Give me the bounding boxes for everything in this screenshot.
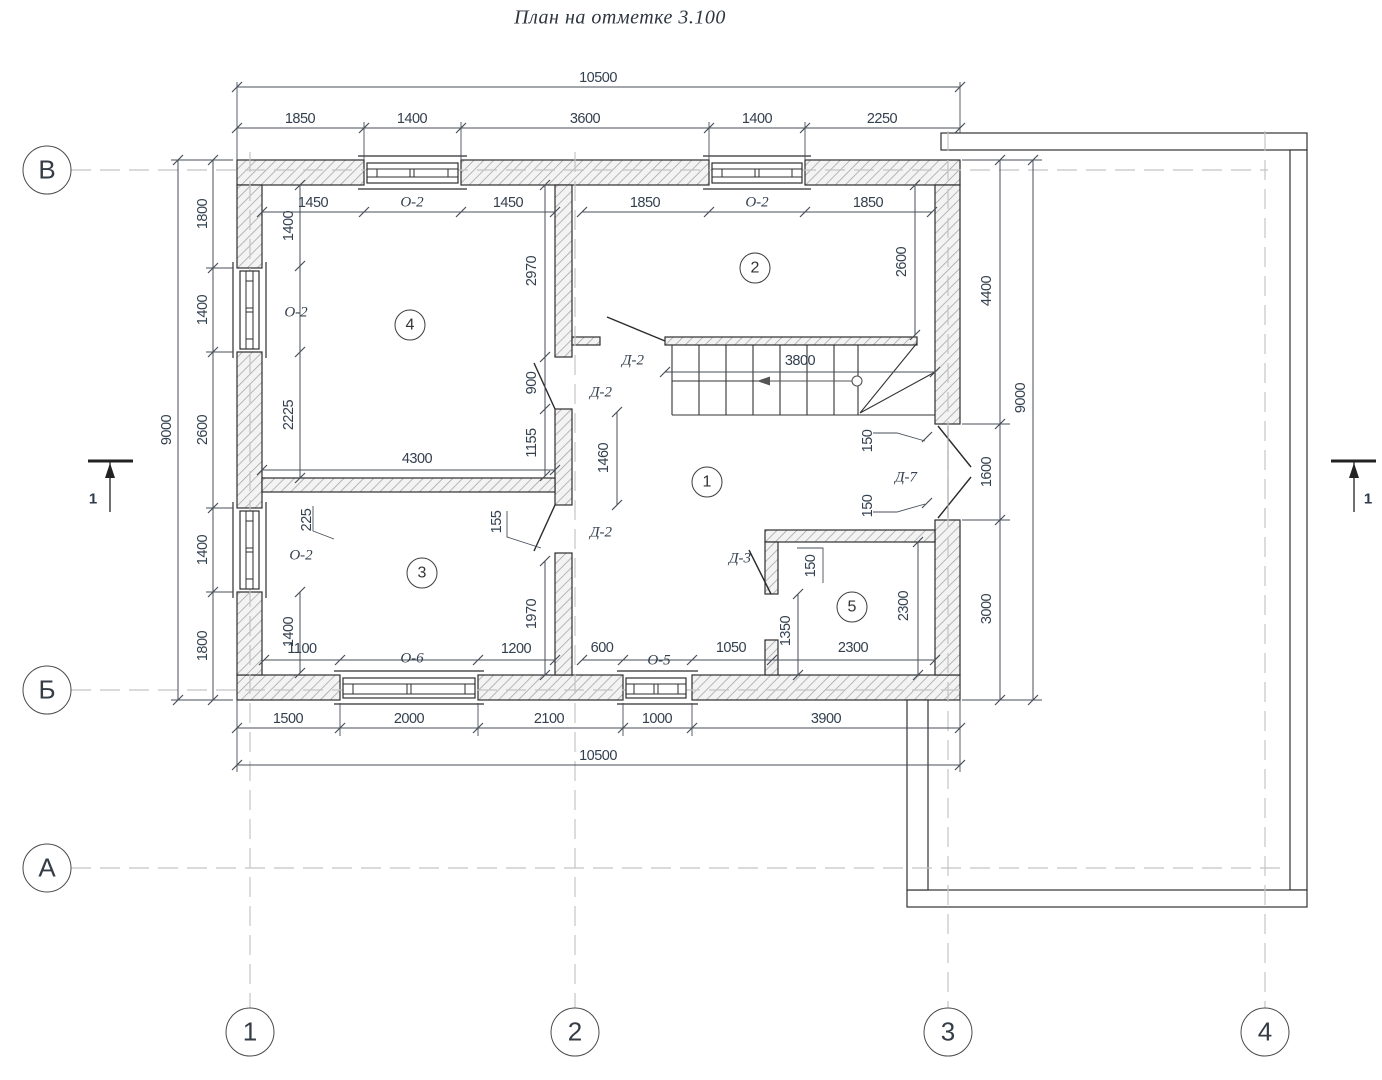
dimension-label: 150 xyxy=(860,495,876,518)
dimension-label: 4400 xyxy=(979,276,995,306)
dimension-label: 3800 xyxy=(785,353,815,369)
dimension-label: 1155 xyxy=(524,428,540,457)
dimension-label: 1200 xyxy=(501,641,531,657)
dimension-label: 225 xyxy=(299,509,315,532)
room-number-badge: 5 xyxy=(837,592,868,623)
dimension-label: 1800 xyxy=(195,631,211,661)
room-number-badge: 4 xyxy=(395,310,426,341)
dimension-label: 1000 xyxy=(642,711,672,727)
dimension-label: 10500 xyxy=(579,748,617,764)
dimension-label: 10500 xyxy=(579,70,617,86)
section-label-left: 1 xyxy=(89,491,97,508)
dimension-label: 2600 xyxy=(894,247,910,277)
dimension-label: 150 xyxy=(860,430,876,453)
dimension-label: 1450 xyxy=(298,195,328,211)
dimension-label: 2300 xyxy=(896,591,912,621)
dimension-label: 2600 xyxy=(195,415,211,445)
dimension-label: 1800 xyxy=(195,199,211,229)
axis-col-bubble: 4 xyxy=(1241,1008,1290,1057)
dimension-label: 2970 xyxy=(524,256,540,286)
opening-label: О-6 xyxy=(400,651,423,668)
dimension-label: 1400 xyxy=(195,295,211,325)
dimension-label: 1850 xyxy=(853,195,883,211)
opening-label: О-5 xyxy=(647,653,670,670)
opening-label: Д-2 xyxy=(590,385,612,402)
axis-col-bubble: 1 xyxy=(226,1008,275,1057)
dimension-label: 9000 xyxy=(159,415,175,445)
annotation-layer: План на отметке 3.100 1 1 10500185014003… xyxy=(0,0,1382,1080)
dimension-label: 2000 xyxy=(394,711,424,727)
opening-label: Д-3 xyxy=(729,551,751,568)
dimension-label: 600 xyxy=(591,640,614,656)
dimension-label: 1850 xyxy=(630,195,660,211)
opening-label: О-2 xyxy=(289,548,312,565)
dimension-label: 9000 xyxy=(1013,383,1029,413)
dimension-label: 1450 xyxy=(493,195,523,211)
room-number-badge: 2 xyxy=(740,253,771,284)
dimension-label: 1500 xyxy=(273,711,303,727)
dimension-label: 1600 xyxy=(979,457,995,487)
opening-label: Д-2 xyxy=(622,353,644,370)
dimension-label: 4300 xyxy=(402,451,432,467)
dimension-label: 3600 xyxy=(570,111,600,127)
opening-label: Д-2 xyxy=(590,525,612,542)
dimension-label: 3900 xyxy=(811,711,841,727)
dimension-label: 3000 xyxy=(979,594,995,624)
dimension-label: 155 xyxy=(489,511,505,534)
dimension-label: 1400 xyxy=(195,535,211,565)
dimension-label: 2250 xyxy=(867,111,897,127)
dimension-label: 2300 xyxy=(838,640,868,656)
dimension-label: 900 xyxy=(524,372,540,395)
axis-col-bubble: 2 xyxy=(551,1008,600,1057)
dimension-label: 1400 xyxy=(397,111,427,127)
axis-row-bubble: В xyxy=(23,146,72,195)
opening-label: О-2 xyxy=(284,305,307,322)
opening-label: О-2 xyxy=(745,195,768,212)
room-number-badge: 1 xyxy=(692,467,723,498)
dimension-label: 1400 xyxy=(742,111,772,127)
dimension-label: 1050 xyxy=(716,640,746,656)
axis-col-bubble: 3 xyxy=(924,1008,973,1057)
drawing-title: План на отметке 3.100 xyxy=(514,7,726,30)
section-label-right: 1 xyxy=(1364,491,1372,508)
dimension-label: 1400 xyxy=(281,211,297,241)
opening-label: Д-7 xyxy=(895,470,917,487)
dimension-label: 2225 xyxy=(281,400,297,430)
dimension-label: 1350 xyxy=(778,616,794,646)
dimension-label: 1970 xyxy=(524,599,540,629)
dimension-label: 1460 xyxy=(596,443,612,473)
axis-row-bubble: Б xyxy=(23,666,72,715)
dimension-label: 1850 xyxy=(285,111,315,127)
dimension-label: 2100 xyxy=(534,711,564,727)
axis-row-bubble: А xyxy=(23,844,72,893)
room-number-badge: 3 xyxy=(407,558,438,589)
dimension-label: 150 xyxy=(803,555,819,578)
floor-plan-page: План на отметке 3.100 1 1 10500185014003… xyxy=(0,0,1382,1080)
dimension-label: 1100 xyxy=(287,641,316,657)
opening-label: О-2 xyxy=(400,195,423,212)
